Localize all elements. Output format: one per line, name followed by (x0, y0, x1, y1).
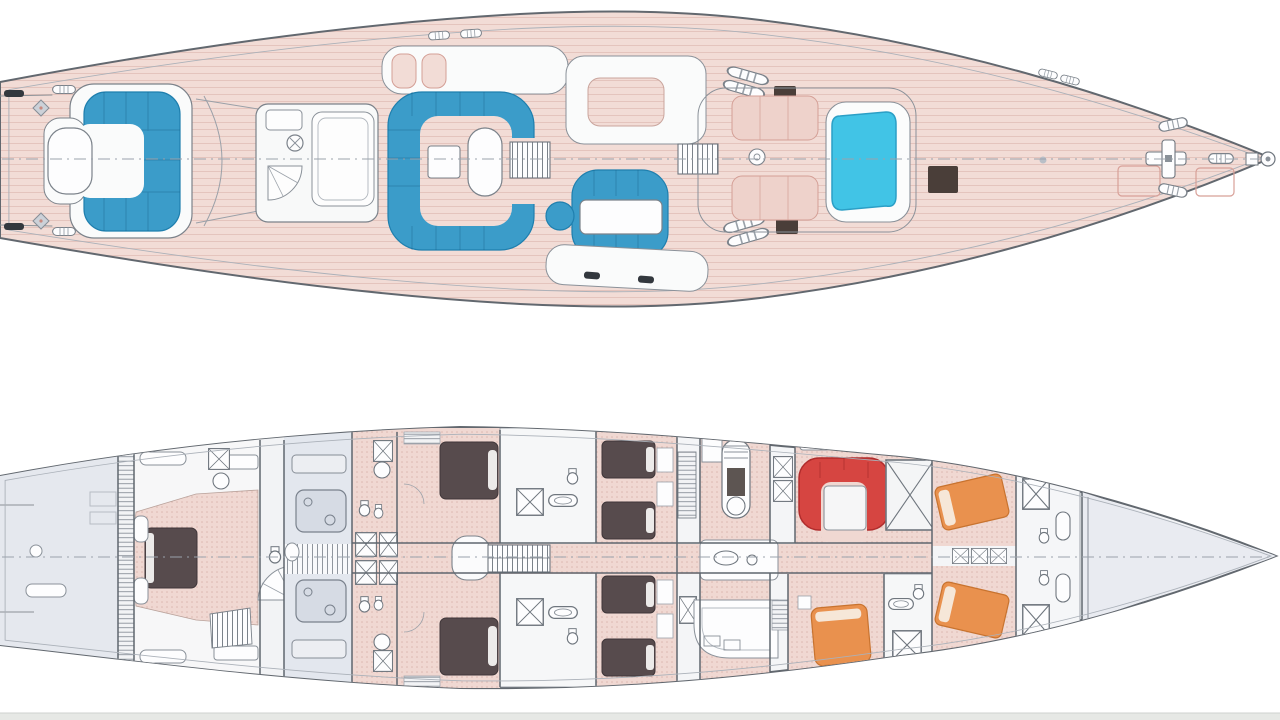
yacht-plan-document (0, 0, 1280, 720)
galley-l-counter (694, 600, 778, 658)
tank (292, 640, 346, 658)
fwd-bath-base (1016, 440, 1080, 676)
tank (292, 455, 346, 473)
dining-stool (546, 202, 574, 230)
crew-locker (971, 548, 987, 563)
engine (296, 490, 346, 532)
nightstand (657, 482, 673, 506)
cockpit-top-band (382, 46, 568, 94)
nightstand (798, 596, 811, 609)
owner-sink (213, 473, 229, 489)
galley-counter (702, 434, 722, 462)
guest-bathroom (500, 572, 596, 687)
guest-bed-pillows (646, 645, 654, 670)
sun-pad (732, 176, 818, 220)
guest-bed-pillows (646, 582, 654, 607)
deck-hatch-dark (928, 166, 958, 193)
locker (404, 432, 440, 444)
lazarette-locker (26, 584, 66, 597)
generator (285, 543, 299, 561)
mooring-winch (1209, 154, 1234, 164)
nightstand (657, 614, 673, 638)
deckhouse (256, 104, 378, 222)
owner-stair-flight (210, 608, 252, 648)
nightstand (657, 448, 673, 472)
stern-cleat (4, 90, 24, 97)
crew-cabin-aft (788, 574, 932, 686)
stern-cleat (4, 223, 24, 230)
galley-locker (774, 481, 793, 502)
vent (749, 149, 765, 165)
guest-bed-pillows (488, 450, 497, 490)
owner-bed-pillows (146, 533, 154, 583)
sink-round (374, 462, 390, 478)
aft-cockpit-table (48, 128, 92, 194)
owner-side-seat (134, 578, 148, 604)
crew-locker (952, 548, 968, 563)
guest-bed-pillows (488, 626, 497, 666)
yacht-plans-canvas (0, 0, 1280, 720)
fwd-sink (1056, 574, 1070, 602)
guest-bed-pillows (646, 508, 654, 533)
padeye (1040, 157, 1047, 164)
bow-fitting-pin (1266, 157, 1271, 162)
galley-locker (774, 457, 793, 478)
owner-cabin (134, 420, 261, 720)
engine (296, 580, 346, 622)
dining-table (580, 200, 662, 234)
lazarette (0, 420, 134, 720)
side-deck-step (545, 244, 709, 292)
helm-seat-pad (392, 54, 416, 88)
guest-bed-pillows (646, 447, 654, 472)
dumbwaiter (727, 468, 745, 496)
corridor (352, 544, 932, 574)
owner-shower (209, 449, 230, 470)
deck-hatch-small (266, 110, 302, 130)
guest-bathroom (500, 428, 596, 543)
footer-bar (0, 713, 1280, 720)
corridor-locker (380, 533, 398, 557)
service-stair (678, 452, 696, 518)
spa-pool (832, 112, 896, 210)
footer-strip (0, 713, 1280, 720)
lower-deck-plan (0, 420, 1278, 720)
crew-bathroom (884, 574, 932, 674)
stern-winch (53, 86, 76, 94)
engine-casing (886, 460, 934, 530)
nightstand (657, 580, 673, 604)
deckhouse-step-platform (566, 56, 706, 144)
cockpit-table (468, 128, 502, 196)
central-staircase (488, 545, 550, 572)
owner-dresser (214, 646, 258, 660)
lobby-wc (269, 547, 280, 563)
engine-room (284, 420, 352, 720)
companionway-stairs (510, 142, 550, 178)
main-deck-plan (0, 12, 1275, 307)
galley-island (700, 540, 778, 580)
sink-round (374, 634, 390, 650)
helm-seat-pad (422, 54, 446, 88)
crew-locker (990, 548, 1006, 563)
galley (694, 428, 792, 688)
sun-pad (732, 96, 818, 140)
stern-winch (53, 228, 76, 236)
fwd-sink (1056, 512, 1070, 540)
aft-bulkhead-band (118, 430, 134, 690)
corridor-locker (356, 533, 377, 557)
owner-side-seat (134, 516, 148, 542)
step-platform-pad (588, 78, 664, 126)
fwd-shower (1023, 605, 1050, 635)
cockpit-table-leaf (428, 146, 460, 178)
forward-bathrooms (1016, 440, 1080, 676)
mess-locker (858, 431, 894, 445)
guest-shower (517, 489, 544, 516)
crew-mess-table (824, 486, 866, 530)
lazarette-fitting (30, 545, 42, 557)
deck-hatch (140, 650, 186, 663)
guest-shower (517, 599, 544, 626)
